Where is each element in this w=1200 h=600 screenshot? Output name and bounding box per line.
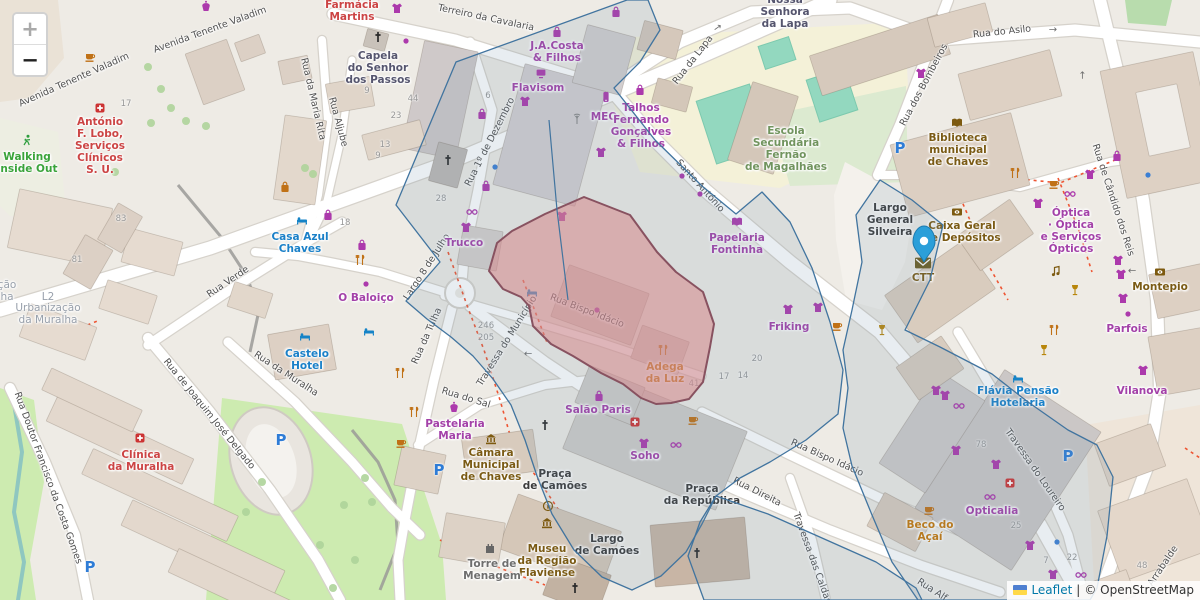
street-label: Rua Bispo Idácio bbox=[548, 292, 625, 330]
poi-label: Urbanização da Muralha bbox=[15, 302, 80, 326]
shirt-icon bbox=[939, 389, 951, 401]
shirt-icon bbox=[1117, 292, 1129, 304]
street-label: Travessa das Caldas bbox=[790, 511, 833, 600]
poi-label: Clínica da Muralha bbox=[108, 449, 175, 473]
poi-label: Pastelaria Maria bbox=[425, 418, 484, 442]
bank-icon bbox=[951, 206, 963, 218]
poi-label: Flavisom bbox=[512, 82, 565, 94]
antenna-icon bbox=[571, 113, 583, 125]
dot-icon bbox=[360, 278, 372, 290]
shirt-icon bbox=[1032, 197, 1044, 209]
bed-icon bbox=[296, 214, 308, 226]
shirt-icon bbox=[915, 67, 927, 79]
poi-label: Castelo Hotel bbox=[285, 348, 329, 372]
marker-pin[interactable] bbox=[910, 222, 938, 266]
house-number: 81 bbox=[72, 255, 83, 265]
poi-label: J.A.Costa & Filhos bbox=[530, 40, 583, 64]
shirt-icon bbox=[1024, 539, 1036, 551]
house-number: 6 bbox=[485, 91, 490, 101]
bag-icon bbox=[551, 26, 563, 38]
oneway-arrow-icon: → bbox=[1128, 265, 1136, 276]
street-label: Rua Alf bbox=[915, 576, 949, 600]
poi-label: Nossa Senhora da Lapa bbox=[760, 0, 809, 30]
poi-label: António F. Lobo, Serviços Clínicos S. U. bbox=[75, 116, 125, 176]
castle-icon bbox=[484, 542, 496, 554]
street-label: Avenida Tenente Valadim bbox=[152, 4, 268, 55]
house-number: 83 bbox=[116, 214, 127, 224]
house-number: 25 bbox=[1011, 521, 1022, 531]
house-number: 9 bbox=[364, 86, 369, 96]
glasses-icon bbox=[1075, 569, 1087, 581]
street-label: Rua dos Bombeiros bbox=[898, 42, 951, 128]
ukraine-flag-icon bbox=[1013, 585, 1027, 595]
shirt-icon bbox=[1137, 364, 1149, 376]
parking-icon: P bbox=[276, 431, 287, 449]
bag-icon bbox=[356, 239, 368, 251]
parking-icon: P bbox=[1063, 447, 1074, 465]
poi-label: Praça de Camões bbox=[523, 468, 588, 492]
zoom-control: + − bbox=[12, 12, 48, 77]
poi-label: Museu da Região Flaviense bbox=[518, 543, 577, 579]
parking-icon: P bbox=[895, 139, 906, 157]
dot-icon bbox=[1051, 536, 1063, 548]
house-number: 14 bbox=[738, 371, 749, 381]
dot-icon bbox=[591, 304, 603, 316]
church-icon bbox=[442, 154, 454, 166]
poi-label: Papelaria Fontinha bbox=[709, 232, 765, 256]
med-icon bbox=[629, 416, 641, 428]
wine-icon bbox=[1038, 344, 1050, 356]
poi-label: L2 bbox=[42, 291, 55, 303]
street-label: Travessa do Loureiro bbox=[1002, 427, 1067, 513]
shirt-icon bbox=[1115, 268, 1127, 280]
map-canvas[interactable]: Avenida Tenente ValadimAvenida Tenente V… bbox=[0, 0, 1200, 600]
wine-icon bbox=[1069, 284, 1081, 296]
oneway-arrow-icon: → bbox=[1049, 25, 1057, 36]
zoom-out-button[interactable]: − bbox=[14, 45, 46, 75]
poi-label: Walking Inside Out bbox=[0, 151, 57, 175]
cutlery-icon bbox=[394, 367, 406, 379]
dot-icon bbox=[694, 188, 706, 200]
shirt-icon bbox=[812, 301, 824, 313]
bag-icon bbox=[634, 84, 646, 96]
street-label: Rua da Lapa bbox=[671, 33, 716, 86]
music-icon bbox=[1050, 265, 1062, 277]
church-icon bbox=[569, 582, 581, 594]
map-labels-layer: Avenida Tenente ValadimAvenida Tenente V… bbox=[0, 0, 1200, 600]
poi-label: Praça da República bbox=[664, 483, 740, 507]
house-number: 41 bbox=[689, 379, 700, 389]
cup-icon bbox=[395, 437, 407, 449]
book-icon bbox=[951, 117, 963, 129]
house-number: 44 bbox=[408, 94, 419, 104]
bag-icon bbox=[476, 108, 488, 120]
attribution: Leaflet | © OpenStreetMap bbox=[1007, 581, 1200, 600]
bag-icon bbox=[480, 180, 492, 192]
bag-icon bbox=[593, 390, 605, 402]
house-number: 246 bbox=[478, 321, 494, 331]
phone-icon bbox=[600, 91, 612, 103]
leaflet-link[interactable]: Leaflet bbox=[1031, 583, 1072, 597]
poi-label: Parfois bbox=[1106, 323, 1147, 335]
book-icon bbox=[731, 216, 743, 228]
poi-label: Óptica · Óptica e Serviços Ópticos bbox=[1041, 207, 1102, 255]
poi-label: CTT bbox=[912, 272, 934, 284]
house-number: 13 bbox=[380, 140, 391, 150]
shirt-icon bbox=[1084, 168, 1096, 180]
zoom-in-button[interactable]: + bbox=[14, 14, 46, 45]
poi-label: Salão Paris bbox=[565, 404, 631, 416]
bed-icon bbox=[299, 330, 311, 342]
info-icon bbox=[542, 500, 554, 512]
cup-icon bbox=[1048, 178, 1060, 190]
house-number: 22 bbox=[1067, 553, 1078, 563]
poi-label: Montepio bbox=[1132, 281, 1188, 293]
wine-icon bbox=[876, 324, 888, 336]
house-number: 17 bbox=[121, 99, 132, 109]
bed-icon bbox=[363, 325, 375, 337]
runner-icon bbox=[21, 134, 33, 146]
shirt-icon bbox=[1112, 254, 1124, 266]
poi-label: Talhos Fernando Gonçalves & Filhos bbox=[611, 102, 671, 150]
poi-label: Largo de Camões bbox=[575, 533, 640, 557]
cup-icon bbox=[687, 414, 699, 426]
cutlery-icon bbox=[657, 344, 669, 356]
street-label: Rua do Asilo bbox=[972, 23, 1031, 40]
shirt-icon bbox=[391, 2, 403, 14]
bag-icon bbox=[322, 209, 334, 221]
poi-label: Beco do Açaí bbox=[907, 519, 954, 543]
cutlery-icon bbox=[1048, 324, 1060, 336]
house-number: 28 bbox=[436, 194, 447, 204]
cup-icon bbox=[923, 504, 935, 516]
shirt-icon bbox=[1047, 568, 1059, 580]
townhall-icon bbox=[485, 433, 497, 445]
tv-icon bbox=[535, 67, 547, 79]
bank-icon bbox=[1154, 266, 1166, 278]
poi-label: Vilanova bbox=[1117, 385, 1168, 397]
glasses-icon bbox=[984, 491, 996, 503]
bag-icon bbox=[1111, 150, 1123, 162]
street-label: Rua Verde bbox=[205, 264, 251, 300]
house-number: 18 bbox=[340, 218, 351, 228]
house-number: 23 bbox=[391, 111, 402, 121]
poi-label: Largo General Silveira bbox=[867, 202, 913, 238]
cupcake-icon bbox=[200, 0, 212, 12]
poi-label: Soho bbox=[630, 450, 659, 462]
osm-link[interactable]: © OpenStreetMap bbox=[1084, 583, 1194, 597]
med-icon bbox=[134, 432, 146, 444]
poi-label: Flávia Pensão Hotelaria bbox=[977, 385, 1059, 409]
cutlery-icon bbox=[354, 254, 366, 266]
poi-label: Biblioteca municipal de Chaves bbox=[928, 132, 989, 168]
house-number: 20 bbox=[752, 354, 763, 364]
poi-label: Trucco bbox=[445, 237, 483, 249]
shirt-icon bbox=[990, 458, 1002, 470]
marker-pin-icon bbox=[910, 222, 938, 262]
oneway-arrow-icon: → bbox=[524, 348, 532, 359]
poi-label: Capela do Senhor dos Passos bbox=[345, 50, 410, 86]
cupcake-icon bbox=[448, 401, 460, 413]
shirt-icon bbox=[556, 210, 568, 222]
street-label: Rua da Tulha bbox=[410, 306, 445, 366]
street-label: Santo António bbox=[674, 157, 727, 214]
shirt-icon bbox=[460, 221, 472, 233]
church-icon bbox=[539, 419, 551, 431]
dot-icon bbox=[676, 170, 688, 182]
church-icon bbox=[372, 31, 384, 43]
dot-icon bbox=[1122, 308, 1134, 320]
cutlery-icon bbox=[408, 406, 420, 418]
street-label: Terreiro da Cavalaria bbox=[437, 2, 535, 33]
shirt-icon bbox=[950, 444, 962, 456]
poi-label: Câmara Municipal de Chaves bbox=[461, 447, 522, 483]
parking-icon: P bbox=[434, 461, 445, 479]
parking-icon: P bbox=[85, 558, 96, 576]
street-label: Rua 1º de Dezembro bbox=[463, 96, 517, 189]
shirt-icon bbox=[638, 437, 650, 449]
bag-icon bbox=[610, 6, 622, 18]
house-number: 7 bbox=[1043, 556, 1048, 566]
street-label: Rua Aljube bbox=[326, 96, 350, 148]
cup-icon bbox=[831, 320, 843, 332]
street-label: Rua de Joaquim José Delgado bbox=[161, 356, 257, 471]
house-number: 78 bbox=[976, 440, 987, 450]
street-label: Rua da Maria Rita bbox=[298, 57, 328, 141]
bed-icon bbox=[526, 286, 538, 298]
house-number: 205 bbox=[478, 333, 494, 343]
glasses-icon bbox=[953, 400, 965, 412]
church-icon bbox=[691, 547, 703, 559]
poi-label: Escola Secundária Fernão de Magalhães bbox=[745, 125, 827, 173]
poi-label: ção ha bbox=[0, 279, 16, 303]
dot-icon bbox=[1142, 169, 1154, 181]
glasses-icon bbox=[1064, 188, 1076, 200]
cup-icon bbox=[84, 51, 96, 63]
poi-label: Casa Azul Chaves bbox=[271, 231, 328, 255]
shirt-icon bbox=[519, 95, 531, 107]
street-label: Rua Doutor Francisco da Costa Gomes bbox=[12, 391, 85, 566]
med-icon bbox=[94, 102, 106, 114]
poi-label: O Baloiço bbox=[338, 292, 394, 304]
shirt-icon bbox=[595, 146, 607, 158]
attribution-separator: | bbox=[1076, 583, 1080, 597]
glasses-icon bbox=[670, 439, 682, 451]
poi-label: Adega da Luz bbox=[646, 361, 685, 385]
dot-icon bbox=[400, 35, 412, 47]
museum-icon bbox=[541, 517, 553, 529]
poi-label: Opticalia bbox=[966, 505, 1019, 517]
shirt-icon bbox=[782, 303, 794, 315]
dot-icon bbox=[489, 161, 501, 173]
poi-label: Torre de Menagem bbox=[463, 558, 521, 582]
house-number: 48 bbox=[1137, 561, 1148, 571]
med-icon bbox=[1004, 477, 1016, 489]
street-label: Rua Bispo Idácio bbox=[789, 437, 865, 479]
oneway-arrow-icon: → bbox=[711, 21, 724, 35]
poi-label: Friking bbox=[769, 321, 810, 333]
house-number: 9 bbox=[375, 151, 380, 161]
bag-icon bbox=[279, 181, 291, 193]
poi-label: Farmácia Martins bbox=[325, 0, 379, 23]
oneway-arrow-icon: → bbox=[1078, 71, 1089, 79]
bed-icon bbox=[1012, 372, 1024, 384]
house-number: 17 bbox=[719, 372, 730, 382]
cutlery-icon bbox=[1009, 167, 1021, 179]
glasses-icon bbox=[466, 206, 478, 218]
